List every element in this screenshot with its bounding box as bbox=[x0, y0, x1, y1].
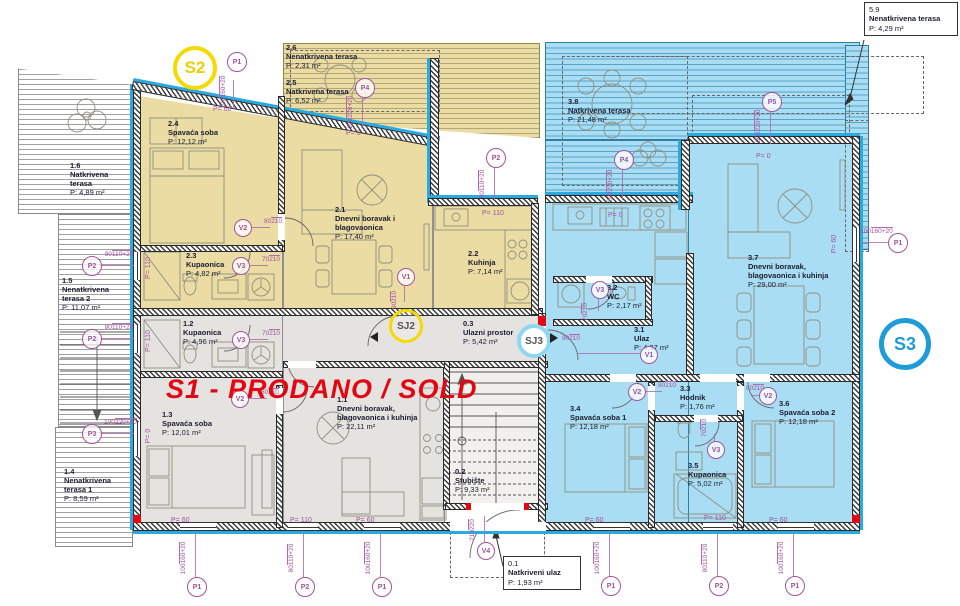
marker-leader-line bbox=[646, 391, 662, 392]
dimension-text: 70210 bbox=[701, 411, 717, 445]
marker-leader-line bbox=[102, 433, 134, 434]
window-marker: P2 bbox=[486, 148, 506, 168]
door-marker: V2 bbox=[759, 387, 777, 405]
red-wall-accent bbox=[466, 503, 471, 510]
dim-width: 210 bbox=[469, 530, 476, 541]
marker-leader-line bbox=[578, 353, 640, 354]
dim-width: 80 bbox=[105, 251, 112, 258]
dimension-text: 100160+20 bbox=[365, 541, 381, 575]
dimension-text: 100160+20 bbox=[220, 75, 236, 109]
window-marker: P5 bbox=[762, 92, 782, 112]
room-area bbox=[545, 195, 693, 530]
wall bbox=[133, 84, 141, 530]
dim-height: 210 bbox=[665, 381, 676, 389]
terrace-area bbox=[58, 214, 132, 427]
door-opening bbox=[468, 503, 526, 510]
door-marker: V3 bbox=[232, 257, 250, 275]
sill-height-label: P= 0 bbox=[346, 130, 361, 137]
window-marker: P1 bbox=[601, 576, 621, 596]
dim-width: 100 bbox=[104, 419, 115, 426]
dim-height: 110+20 bbox=[701, 544, 709, 565]
dim-height: 160+20 bbox=[364, 542, 372, 564]
dim-width: 300 bbox=[755, 132, 762, 143]
door-marker: V4 bbox=[477, 542, 495, 560]
room-label: 2.5Natkrivena terasaP: 6,52 m² bbox=[286, 79, 398, 106]
dim-height: 210 bbox=[569, 334, 580, 342]
door-marker: V3 bbox=[591, 281, 609, 299]
entry-arrow-right-icon bbox=[550, 333, 558, 343]
dimension-text: 80110+20 bbox=[104, 251, 134, 259]
door-opening bbox=[450, 522, 546, 531]
s1-sold-label: S1 - PRODANO / SOLD bbox=[166, 374, 478, 405]
room-area: P: 1,93 m² bbox=[508, 578, 576, 587]
dim-height: 160+20 bbox=[219, 76, 227, 98]
door-opening bbox=[288, 361, 316, 368]
dim-height: 210 bbox=[700, 419, 708, 430]
door-opening bbox=[610, 374, 636, 382]
room-area: P: 4,89 m² bbox=[70, 189, 130, 198]
window-marker: P2 bbox=[82, 256, 102, 276]
room-name: Nenatkrivena terasa bbox=[869, 14, 953, 23]
dim-height: 110+20 bbox=[112, 250, 133, 258]
room-area: P: 2,31 m² bbox=[286, 62, 398, 71]
room-label: 2.2KuhinjaP: 7,14 m² bbox=[468, 250, 530, 277]
wall bbox=[133, 308, 543, 316]
dimension-text: 80110+20 bbox=[479, 167, 495, 201]
door-marker: V3 bbox=[707, 441, 725, 459]
marker-leader-line bbox=[252, 227, 270, 228]
room-label: 2.4Spavaća sobaP: 12,12 m² bbox=[168, 120, 248, 147]
window-marker: P1 bbox=[227, 52, 247, 72]
dim-height: 210 bbox=[271, 217, 282, 225]
dimension-text: 100160+20 bbox=[860, 228, 890, 236]
room-name: Natkriveni ulaz bbox=[508, 568, 576, 577]
dim-width: 100 bbox=[365, 564, 372, 575]
dimension-text: 100160+20 bbox=[180, 541, 196, 575]
room-name: Nenatkrivena terasa 1 bbox=[64, 477, 130, 495]
door-opening bbox=[700, 374, 736, 382]
room-label: 1.3Spavaća sobaP: 12,01 m² bbox=[162, 411, 242, 438]
sill-height-label: P= 110 bbox=[704, 515, 726, 522]
room-label: 3.4Spavaća soba 1P: 12,18 m² bbox=[570, 405, 654, 432]
room-area: P: 6,52 m² bbox=[286, 97, 398, 106]
red-wall-accent bbox=[524, 503, 529, 510]
marker-leader-line bbox=[598, 299, 599, 311]
dimension-text: 100220+20 bbox=[104, 419, 134, 427]
wall bbox=[443, 361, 548, 368]
window-marker: P4 bbox=[355, 78, 375, 98]
room-number: 5.9 bbox=[869, 5, 953, 14]
wall bbox=[140, 245, 283, 252]
door-marker: V3 bbox=[232, 331, 250, 349]
sill-height-label: P= 110 bbox=[145, 324, 155, 358]
room-label: 3.7Dnevni boravak, blagovaonica i kuhinj… bbox=[748, 254, 838, 289]
sill-height-label: P= 60 bbox=[585, 517, 604, 524]
sill-height-label: P= 110 bbox=[290, 517, 312, 524]
dimension-text: 70210 bbox=[582, 295, 598, 329]
marker-leader-line bbox=[102, 338, 134, 339]
apartment-s3-badge: S3 bbox=[879, 318, 931, 370]
dimension-text: 70210 bbox=[256, 330, 286, 338]
sill-height-label: P= 60 bbox=[356, 517, 375, 524]
room-name: Nenatkrivena terasa 2 bbox=[62, 286, 128, 304]
dimension-text: 90210 bbox=[556, 335, 586, 343]
door-opening bbox=[744, 374, 770, 382]
room-area: P: 29,00 m² bbox=[748, 281, 838, 290]
dimension-text: 80210 bbox=[258, 218, 288, 226]
sill-height-label: P= 0 bbox=[608, 212, 623, 219]
dim-height: 210 bbox=[390, 291, 398, 302]
dim-width: 80 bbox=[479, 191, 486, 198]
callout-entrance-0-1: 0.1 Natkriveni ulaz P: 1,93 m² bbox=[503, 556, 581, 590]
dim-height: 160+20 bbox=[179, 542, 187, 564]
dim-width: 80 bbox=[105, 324, 112, 331]
room-area: P: 5,02 m² bbox=[688, 480, 760, 489]
wall bbox=[278, 96, 285, 214]
room-label: 3.2WCP: 2,17 m² bbox=[607, 284, 661, 311]
room-area: P: 7,14 m² bbox=[468, 268, 530, 277]
room-number: 0.1 bbox=[508, 559, 576, 568]
dim-height: 220+20 bbox=[606, 170, 614, 192]
door-marker: V2 bbox=[234, 219, 252, 237]
dim-height: 160+20 bbox=[871, 227, 893, 235]
dimension-text: 70210 bbox=[256, 256, 286, 264]
room-label: 2.1Dnevni boravak i blagovaonicaP: 17,40… bbox=[335, 206, 419, 241]
window bbox=[133, 252, 141, 280]
sill-height-label: P= 0 bbox=[145, 419, 155, 453]
wall bbox=[430, 58, 439, 203]
dim-width: 200 bbox=[347, 118, 354, 129]
dimension-text: 200220+20 bbox=[607, 169, 623, 203]
room-area: P: 4,29 m² bbox=[869, 24, 953, 33]
callout-terrace-5-9: 5.9 Nenatkrivena terasa P: 4,29 m² bbox=[864, 2, 958, 36]
room-label: 0.2StubišteP: 9,33 m² bbox=[455, 468, 519, 495]
sill-height-label: P= 0 bbox=[756, 153, 771, 160]
dimension-text: 100160+20 bbox=[594, 541, 610, 575]
room-label: 3.8Natkrivena terasaP: 21,48 m² bbox=[568, 98, 658, 125]
window-marker: P2 bbox=[295, 577, 315, 597]
red-wall-accent bbox=[852, 515, 860, 523]
dimension-text: 80210 bbox=[652, 382, 682, 390]
room-label: 3.6Spavaća soba 2P: 12,18 m² bbox=[779, 400, 869, 427]
dim-width: 90 bbox=[391, 302, 398, 309]
dim-height: 210 bbox=[269, 329, 280, 337]
window-marker: P3 bbox=[82, 424, 102, 444]
dimension-text: 80110+20 bbox=[702, 541, 718, 575]
window-marker: P4 bbox=[614, 150, 634, 170]
dim-width: 70 bbox=[582, 314, 589, 321]
dimension-text: 80110+20 bbox=[104, 324, 134, 332]
floor-plan: S2 S3 SJ2 SJ3 S1 - PRODANO / SOLD 5.9 Ne… bbox=[0, 0, 960, 606]
dim-height: 220 bbox=[468, 519, 476, 530]
sill-height-label: P= 60 bbox=[213, 106, 232, 113]
dim-width: 200 bbox=[607, 192, 614, 203]
window bbox=[133, 325, 141, 353]
dimension-text: 300220+20 bbox=[755, 109, 771, 143]
wall bbox=[688, 136, 860, 144]
room-area: P: 17,40 m² bbox=[335, 233, 419, 242]
room-area: P: 9,33 m² bbox=[455, 486, 519, 495]
dimension-text: 200220+20 bbox=[347, 95, 363, 129]
dim-width: 80 bbox=[702, 565, 709, 572]
wall bbox=[681, 140, 690, 210]
marker-leader-line bbox=[102, 265, 134, 266]
door-marker: V1 bbox=[640, 346, 658, 364]
dim-width: 100 bbox=[860, 228, 871, 235]
window bbox=[703, 522, 733, 531]
door-marker: V1 bbox=[397, 268, 415, 286]
dim-height: 160+20 bbox=[777, 542, 785, 564]
room-name: Dnevni boravak, blagovaonica i kuhinja bbox=[337, 405, 427, 423]
room-area: P: 11,07 m² bbox=[62, 304, 128, 313]
room-area: P: 22,11 m² bbox=[337, 423, 427, 432]
marker-leader-line bbox=[250, 265, 268, 266]
entry-arrow-left-icon bbox=[370, 332, 378, 342]
room-label: 3.3HodnikP: 1,76 m² bbox=[680, 385, 738, 412]
wall bbox=[531, 203, 539, 315]
dim-height: 210 bbox=[581, 303, 589, 314]
sill-height-label: P= 60 bbox=[831, 227, 841, 261]
dim-width: 80 bbox=[288, 565, 295, 572]
dim-height: 160+20 bbox=[593, 542, 601, 564]
apartment-s2-badge: S2 bbox=[173, 46, 217, 90]
sill-height-label: P= 60 bbox=[171, 517, 190, 524]
marker-leader-line bbox=[250, 339, 268, 340]
door-marker: V2 bbox=[628, 383, 646, 401]
room-area: P: 21,48 m² bbox=[568, 116, 658, 125]
room-label: 1.6Natkrivena terasaP: 4,89 m² bbox=[70, 162, 130, 197]
dim-height: 220+20 bbox=[346, 96, 354, 118]
room-area: P: 2,17 m² bbox=[607, 302, 661, 311]
window bbox=[852, 228, 860, 262]
dim-height: 110+20 bbox=[112, 323, 133, 331]
window-marker: P1 bbox=[888, 233, 908, 253]
room-label: 2.6Nenatkrivena terasaP: 2,31 m² bbox=[286, 44, 398, 71]
marker-leader-line bbox=[862, 242, 888, 243]
red-wall-accent bbox=[133, 515, 141, 523]
window-marker: P1 bbox=[785, 576, 805, 596]
room-area: P: 12,12 m² bbox=[168, 138, 248, 147]
sill-height-label: P= 110 bbox=[145, 251, 155, 285]
room-area: P: 8,59 m² bbox=[64, 495, 130, 504]
window-marker: P2 bbox=[82, 329, 102, 349]
sj3-badge: SJ3 bbox=[517, 324, 551, 358]
room-label: 1.5Nenatkrivena terasa 2P: 11,07 m² bbox=[62, 277, 128, 312]
window-marker: P1 bbox=[372, 577, 392, 597]
sj2-badge: SJ2 bbox=[389, 309, 423, 343]
dimension-text: 100160+20 bbox=[778, 541, 794, 575]
sill-height-label: P= 110 bbox=[482, 210, 504, 217]
wall bbox=[686, 253, 694, 375]
window bbox=[133, 422, 141, 456]
dim-height: 110+20 bbox=[478, 170, 486, 191]
room-area: P: 12,18 m² bbox=[570, 423, 654, 432]
room-area: P: 12,18 m² bbox=[779, 418, 869, 427]
dim-height: 220+20 bbox=[115, 418, 137, 426]
dim-width: 100 bbox=[594, 564, 601, 575]
dim-height: 210 bbox=[269, 255, 280, 263]
dim-width: 100 bbox=[778, 564, 785, 575]
room-label: 1.4Nenatkrivena terasa 1P: 8,59 m² bbox=[64, 468, 130, 503]
room-area: P: 12,01 m² bbox=[162, 429, 242, 438]
dim-height: 220+20 bbox=[754, 110, 762, 132]
room-name: Natkrivena terasa bbox=[70, 171, 130, 189]
window-marker: P1 bbox=[187, 577, 207, 597]
dimension-text: 80110+20 bbox=[288, 541, 304, 575]
room-label: 3.5KupaonicaP: 5,02 m² bbox=[688, 462, 760, 489]
room-name: Dnevni boravak i blagovaonica bbox=[335, 215, 419, 233]
dim-width: 70 bbox=[701, 430, 708, 437]
room-name: Dnevni boravak, blagovaonica i kuhinja bbox=[748, 263, 838, 281]
wall bbox=[852, 136, 860, 530]
dim-height: 110+20 bbox=[287, 544, 295, 565]
sill-height-label: P= 60 bbox=[769, 517, 788, 524]
dim-width: 100 bbox=[180, 564, 187, 575]
window-marker: P2 bbox=[709, 576, 729, 596]
